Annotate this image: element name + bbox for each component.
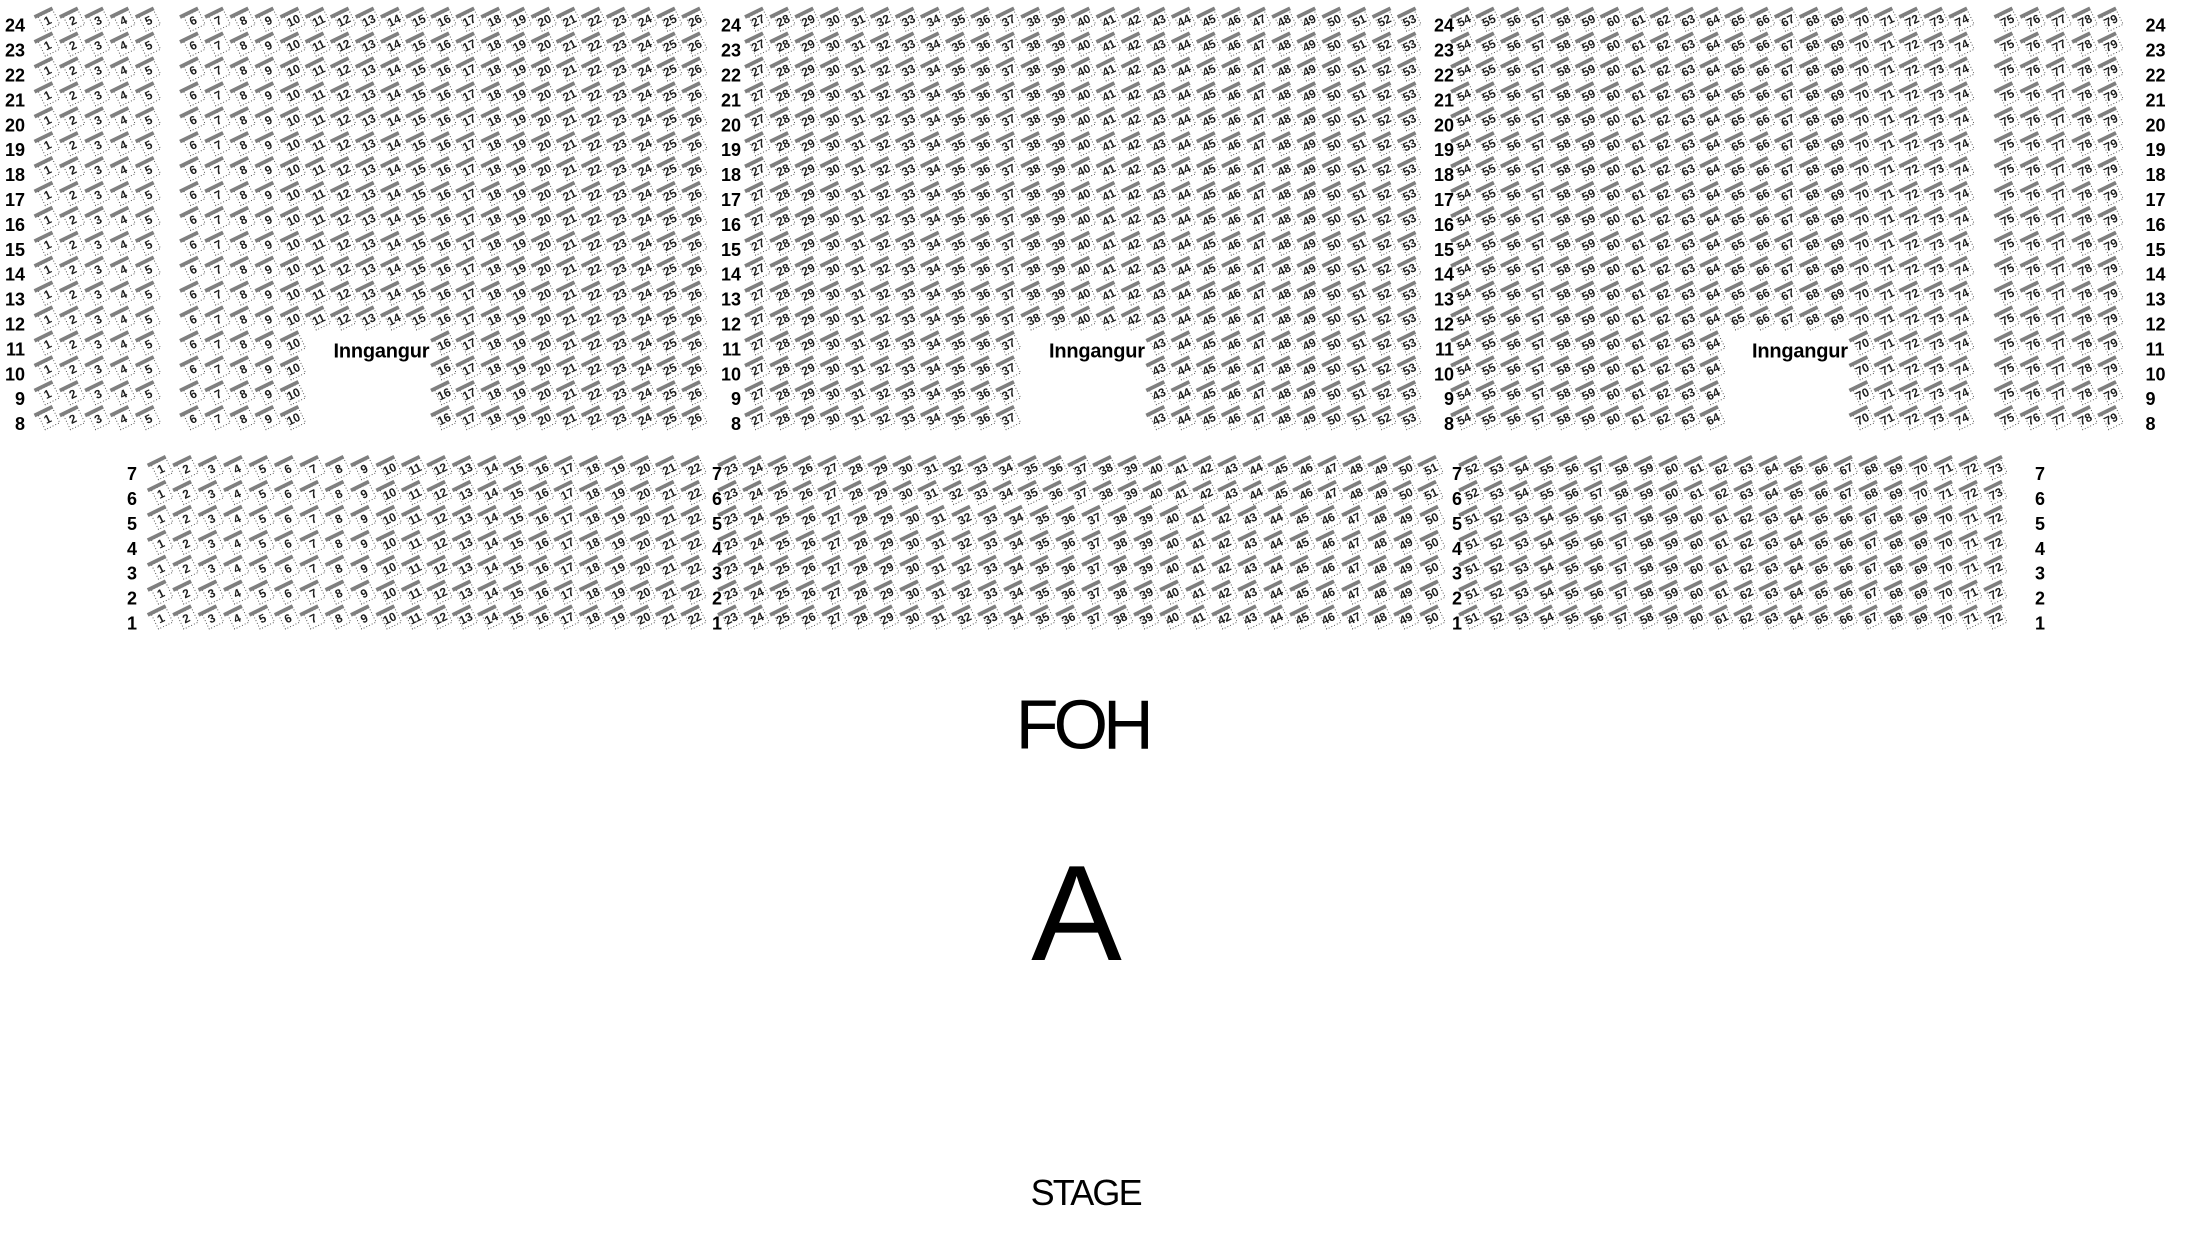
svg-text:8: 8 bbox=[237, 187, 249, 203]
svg-text:8: 8 bbox=[237, 337, 249, 353]
svg-text:22: 22 bbox=[721, 66, 741, 86]
svg-text:9: 9 bbox=[262, 112, 274, 128]
svg-text:16: 16 bbox=[5, 215, 25, 235]
svg-text:15: 15 bbox=[721, 240, 741, 260]
svg-text:8: 8 bbox=[333, 586, 345, 602]
svg-text:22: 22 bbox=[5, 66, 25, 86]
svg-text:14: 14 bbox=[2146, 265, 2166, 285]
svg-text:4: 4 bbox=[231, 511, 243, 527]
svg-text:2: 2 bbox=[67, 411, 79, 427]
svg-text:6: 6 bbox=[1452, 489, 1462, 509]
svg-text:1: 1 bbox=[42, 162, 54, 178]
svg-text:6: 6 bbox=[282, 461, 294, 477]
svg-text:7: 7 bbox=[212, 386, 224, 402]
svg-text:3: 3 bbox=[206, 536, 218, 552]
svg-text:9: 9 bbox=[262, 337, 274, 353]
svg-text:2: 2 bbox=[67, 162, 79, 178]
svg-text:Inngangur: Inngangur bbox=[1049, 341, 1145, 363]
svg-text:FOH: FOH bbox=[1016, 685, 1154, 763]
svg-text:4: 4 bbox=[2035, 539, 2045, 559]
svg-text:9: 9 bbox=[262, 312, 274, 328]
svg-text:10: 10 bbox=[721, 364, 741, 384]
svg-text:4: 4 bbox=[117, 361, 129, 377]
svg-text:20: 20 bbox=[1434, 115, 1454, 135]
svg-text:4: 4 bbox=[231, 586, 243, 602]
svg-text:10: 10 bbox=[5, 364, 25, 384]
svg-text:9: 9 bbox=[358, 611, 370, 627]
svg-text:3: 3 bbox=[92, 162, 104, 178]
svg-text:5: 5 bbox=[143, 88, 155, 104]
svg-text:15: 15 bbox=[1434, 240, 1454, 260]
svg-text:8: 8 bbox=[333, 511, 345, 527]
svg-text:2: 2 bbox=[180, 586, 192, 602]
svg-text:5: 5 bbox=[143, 38, 155, 54]
svg-text:6: 6 bbox=[282, 486, 294, 502]
svg-text:3: 3 bbox=[127, 564, 137, 584]
svg-text:7: 7 bbox=[212, 361, 224, 377]
svg-text:6: 6 bbox=[187, 411, 199, 427]
svg-text:9: 9 bbox=[358, 536, 370, 552]
svg-text:4: 4 bbox=[1452, 539, 1462, 559]
svg-text:6: 6 bbox=[282, 611, 294, 627]
svg-text:6: 6 bbox=[187, 187, 199, 203]
svg-text:21: 21 bbox=[721, 90, 741, 110]
svg-text:7: 7 bbox=[212, 411, 224, 427]
svg-text:5: 5 bbox=[256, 536, 268, 552]
svg-text:4: 4 bbox=[117, 137, 129, 153]
svg-text:6: 6 bbox=[127, 489, 137, 509]
svg-text:7: 7 bbox=[307, 586, 319, 602]
svg-text:22: 22 bbox=[2146, 66, 2166, 86]
svg-text:7: 7 bbox=[212, 312, 224, 328]
svg-text:3: 3 bbox=[206, 486, 218, 502]
svg-text:5: 5 bbox=[256, 511, 268, 527]
svg-text:4: 4 bbox=[117, 13, 129, 29]
svg-text:2: 2 bbox=[1452, 589, 1462, 609]
svg-text:7: 7 bbox=[307, 536, 319, 552]
svg-text:4: 4 bbox=[117, 162, 129, 178]
svg-text:2: 2 bbox=[180, 461, 192, 477]
svg-text:14: 14 bbox=[5, 265, 25, 285]
svg-text:3: 3 bbox=[206, 611, 218, 627]
svg-text:3: 3 bbox=[92, 386, 104, 402]
svg-text:7: 7 bbox=[307, 461, 319, 477]
svg-text:19: 19 bbox=[5, 140, 25, 160]
svg-text:4: 4 bbox=[117, 112, 129, 128]
svg-text:8: 8 bbox=[237, 212, 249, 228]
svg-text:12: 12 bbox=[1434, 315, 1454, 335]
svg-text:5: 5 bbox=[143, 411, 155, 427]
svg-text:7: 7 bbox=[1452, 464, 1462, 484]
svg-text:4: 4 bbox=[117, 386, 129, 402]
svg-text:23: 23 bbox=[721, 41, 741, 61]
svg-text:2: 2 bbox=[67, 63, 79, 79]
svg-text:9: 9 bbox=[262, 162, 274, 178]
svg-text:2: 2 bbox=[67, 38, 79, 54]
svg-text:9: 9 bbox=[262, 237, 274, 253]
svg-text:6: 6 bbox=[187, 63, 199, 79]
svg-text:8: 8 bbox=[237, 361, 249, 377]
svg-text:3: 3 bbox=[92, 63, 104, 79]
svg-text:1: 1 bbox=[2035, 614, 2045, 634]
svg-text:2: 2 bbox=[67, 262, 79, 278]
svg-text:2: 2 bbox=[180, 561, 192, 577]
svg-text:2: 2 bbox=[67, 312, 79, 328]
svg-text:4: 4 bbox=[117, 337, 129, 353]
svg-text:21: 21 bbox=[1434, 90, 1454, 110]
svg-text:9: 9 bbox=[262, 361, 274, 377]
svg-text:9: 9 bbox=[262, 411, 274, 427]
svg-text:8: 8 bbox=[237, 162, 249, 178]
svg-text:7: 7 bbox=[307, 486, 319, 502]
svg-text:9: 9 bbox=[358, 561, 370, 577]
svg-text:6: 6 bbox=[187, 13, 199, 29]
svg-text:21: 21 bbox=[2146, 90, 2166, 110]
svg-text:14: 14 bbox=[721, 265, 741, 285]
svg-text:5: 5 bbox=[143, 162, 155, 178]
svg-text:13: 13 bbox=[1434, 290, 1454, 310]
svg-text:18: 18 bbox=[2146, 165, 2166, 185]
svg-text:9: 9 bbox=[262, 88, 274, 104]
svg-text:3: 3 bbox=[92, 312, 104, 328]
svg-text:9: 9 bbox=[731, 389, 741, 409]
svg-text:2: 2 bbox=[180, 486, 192, 502]
svg-text:9: 9 bbox=[262, 137, 274, 153]
svg-text:8: 8 bbox=[237, 262, 249, 278]
svg-text:23: 23 bbox=[1434, 41, 1454, 61]
svg-text:8: 8 bbox=[237, 411, 249, 427]
svg-text:16: 16 bbox=[2146, 215, 2166, 235]
svg-text:8: 8 bbox=[731, 414, 741, 434]
svg-text:8: 8 bbox=[333, 611, 345, 627]
svg-text:6: 6 bbox=[187, 312, 199, 328]
svg-text:6: 6 bbox=[187, 137, 199, 153]
svg-text:6: 6 bbox=[187, 162, 199, 178]
svg-text:16: 16 bbox=[721, 215, 741, 235]
svg-text:3: 3 bbox=[92, 212, 104, 228]
svg-text:1: 1 bbox=[42, 386, 54, 402]
svg-text:2: 2 bbox=[67, 237, 79, 253]
svg-text:9: 9 bbox=[358, 586, 370, 602]
svg-text:8: 8 bbox=[237, 137, 249, 153]
svg-text:1: 1 bbox=[155, 536, 167, 552]
svg-text:4: 4 bbox=[117, 237, 129, 253]
svg-text:4: 4 bbox=[231, 611, 243, 627]
svg-text:3: 3 bbox=[92, 411, 104, 427]
svg-text:1: 1 bbox=[712, 614, 722, 634]
svg-text:3: 3 bbox=[92, 187, 104, 203]
svg-text:8: 8 bbox=[237, 13, 249, 29]
svg-text:5: 5 bbox=[143, 13, 155, 29]
svg-text:5: 5 bbox=[143, 386, 155, 402]
svg-text:1: 1 bbox=[42, 312, 54, 328]
svg-text:1: 1 bbox=[42, 262, 54, 278]
svg-text:7: 7 bbox=[212, 337, 224, 353]
svg-text:3: 3 bbox=[92, 287, 104, 303]
svg-text:19: 19 bbox=[721, 140, 741, 160]
svg-text:9: 9 bbox=[262, 187, 274, 203]
svg-text:17: 17 bbox=[5, 190, 25, 210]
svg-text:8: 8 bbox=[333, 486, 345, 502]
svg-text:9: 9 bbox=[262, 287, 274, 303]
svg-text:1: 1 bbox=[155, 561, 167, 577]
svg-text:1: 1 bbox=[1452, 614, 1462, 634]
svg-text:6: 6 bbox=[187, 88, 199, 104]
svg-text:9: 9 bbox=[358, 486, 370, 502]
svg-text:5: 5 bbox=[1452, 514, 1462, 534]
svg-text:6: 6 bbox=[187, 361, 199, 377]
svg-text:20: 20 bbox=[2146, 115, 2166, 135]
svg-text:4: 4 bbox=[117, 411, 129, 427]
svg-text:1: 1 bbox=[155, 586, 167, 602]
svg-text:5: 5 bbox=[143, 137, 155, 153]
svg-text:5: 5 bbox=[143, 337, 155, 353]
svg-text:1: 1 bbox=[42, 237, 54, 253]
svg-text:3: 3 bbox=[92, 137, 104, 153]
svg-text:6: 6 bbox=[187, 386, 199, 402]
svg-text:19: 19 bbox=[1434, 140, 1454, 160]
svg-text:13: 13 bbox=[721, 290, 741, 310]
svg-text:6: 6 bbox=[187, 262, 199, 278]
svg-text:6: 6 bbox=[712, 489, 722, 509]
svg-text:1: 1 bbox=[155, 486, 167, 502]
svg-text:10: 10 bbox=[1434, 364, 1454, 384]
svg-text:11: 11 bbox=[6, 339, 25, 359]
svg-text:2: 2 bbox=[127, 589, 137, 609]
svg-text:5: 5 bbox=[143, 312, 155, 328]
svg-text:1: 1 bbox=[127, 614, 137, 634]
svg-text:6: 6 bbox=[187, 287, 199, 303]
svg-text:23: 23 bbox=[5, 41, 25, 61]
svg-text:3: 3 bbox=[1452, 564, 1462, 584]
svg-text:7: 7 bbox=[212, 287, 224, 303]
svg-text:3: 3 bbox=[92, 88, 104, 104]
svg-text:4: 4 bbox=[231, 536, 243, 552]
svg-text:2: 2 bbox=[712, 589, 722, 609]
svg-text:8: 8 bbox=[237, 88, 249, 104]
svg-text:1: 1 bbox=[42, 38, 54, 54]
svg-text:Inngangur: Inngangur bbox=[1752, 341, 1848, 363]
svg-text:4: 4 bbox=[117, 187, 129, 203]
svg-text:7: 7 bbox=[307, 511, 319, 527]
svg-text:20: 20 bbox=[721, 115, 741, 135]
svg-text:6: 6 bbox=[187, 237, 199, 253]
svg-text:7: 7 bbox=[212, 63, 224, 79]
svg-text:4: 4 bbox=[231, 486, 243, 502]
svg-text:1: 1 bbox=[42, 137, 54, 153]
svg-text:2: 2 bbox=[67, 337, 79, 353]
svg-text:7: 7 bbox=[127, 464, 137, 484]
svg-text:A: A bbox=[1031, 837, 1122, 989]
svg-text:2: 2 bbox=[67, 212, 79, 228]
svg-text:2: 2 bbox=[67, 386, 79, 402]
svg-text:9: 9 bbox=[262, 13, 274, 29]
svg-text:7: 7 bbox=[212, 237, 224, 253]
svg-text:12: 12 bbox=[2146, 315, 2166, 335]
svg-text:5: 5 bbox=[256, 461, 268, 477]
svg-text:6: 6 bbox=[282, 511, 294, 527]
svg-text:5: 5 bbox=[143, 112, 155, 128]
svg-text:7: 7 bbox=[212, 137, 224, 153]
svg-text:7: 7 bbox=[2035, 464, 2045, 484]
svg-text:3: 3 bbox=[92, 361, 104, 377]
svg-text:2: 2 bbox=[180, 511, 192, 527]
svg-text:3: 3 bbox=[206, 586, 218, 602]
svg-text:17: 17 bbox=[2146, 190, 2166, 210]
svg-text:9: 9 bbox=[15, 389, 25, 409]
svg-text:4: 4 bbox=[117, 63, 129, 79]
svg-text:7: 7 bbox=[212, 112, 224, 128]
svg-text:3: 3 bbox=[2035, 564, 2045, 584]
svg-text:5: 5 bbox=[256, 486, 268, 502]
svg-text:9: 9 bbox=[2146, 389, 2156, 409]
svg-text:5: 5 bbox=[256, 611, 268, 627]
svg-text:3: 3 bbox=[206, 461, 218, 477]
svg-text:6: 6 bbox=[2035, 489, 2045, 509]
svg-text:3: 3 bbox=[92, 237, 104, 253]
svg-text:8: 8 bbox=[333, 461, 345, 477]
svg-text:6: 6 bbox=[187, 38, 199, 54]
svg-text:18: 18 bbox=[721, 165, 741, 185]
svg-text:4: 4 bbox=[231, 461, 243, 477]
svg-text:1: 1 bbox=[42, 187, 54, 203]
svg-text:19: 19 bbox=[2146, 140, 2166, 160]
svg-text:9: 9 bbox=[1444, 389, 1454, 409]
svg-text:4: 4 bbox=[117, 287, 129, 303]
svg-text:8: 8 bbox=[237, 312, 249, 328]
svg-text:7: 7 bbox=[212, 187, 224, 203]
svg-text:12: 12 bbox=[721, 315, 741, 335]
svg-text:8: 8 bbox=[2146, 414, 2156, 434]
svg-text:4: 4 bbox=[712, 539, 722, 559]
svg-text:1: 1 bbox=[42, 337, 54, 353]
svg-text:2: 2 bbox=[67, 287, 79, 303]
svg-text:1: 1 bbox=[42, 361, 54, 377]
svg-text:7: 7 bbox=[212, 212, 224, 228]
svg-text:1: 1 bbox=[155, 611, 167, 627]
svg-text:15: 15 bbox=[2146, 240, 2166, 260]
svg-text:8: 8 bbox=[237, 287, 249, 303]
svg-text:8: 8 bbox=[15, 414, 25, 434]
svg-text:13: 13 bbox=[2146, 290, 2166, 310]
svg-text:5: 5 bbox=[143, 187, 155, 203]
svg-text:7: 7 bbox=[212, 162, 224, 178]
svg-text:8: 8 bbox=[237, 386, 249, 402]
svg-text:24: 24 bbox=[721, 16, 741, 36]
svg-text:6: 6 bbox=[187, 337, 199, 353]
svg-text:7: 7 bbox=[212, 38, 224, 54]
svg-text:6: 6 bbox=[282, 561, 294, 577]
svg-text:2: 2 bbox=[67, 13, 79, 29]
svg-text:7: 7 bbox=[307, 561, 319, 577]
svg-text:8: 8 bbox=[333, 561, 345, 577]
svg-text:2: 2 bbox=[67, 137, 79, 153]
svg-text:4: 4 bbox=[231, 561, 243, 577]
svg-text:24: 24 bbox=[2146, 16, 2166, 36]
svg-text:8: 8 bbox=[237, 237, 249, 253]
svg-text:4: 4 bbox=[117, 312, 129, 328]
svg-text:9: 9 bbox=[262, 38, 274, 54]
svg-text:11: 11 bbox=[1435, 339, 1454, 359]
svg-text:1: 1 bbox=[42, 112, 54, 128]
svg-text:3: 3 bbox=[712, 564, 722, 584]
svg-text:6: 6 bbox=[187, 112, 199, 128]
svg-text:18: 18 bbox=[5, 165, 25, 185]
svg-text:4: 4 bbox=[117, 88, 129, 104]
svg-text:5: 5 bbox=[143, 361, 155, 377]
svg-text:2: 2 bbox=[2035, 589, 2045, 609]
svg-text:17: 17 bbox=[1434, 190, 1454, 210]
svg-text:13: 13 bbox=[5, 290, 25, 310]
svg-text:9: 9 bbox=[358, 461, 370, 477]
svg-text:3: 3 bbox=[92, 38, 104, 54]
svg-text:8: 8 bbox=[1444, 414, 1454, 434]
svg-text:7: 7 bbox=[712, 464, 722, 484]
svg-text:5: 5 bbox=[143, 287, 155, 303]
svg-text:5: 5 bbox=[256, 586, 268, 602]
svg-text:1: 1 bbox=[155, 511, 167, 527]
svg-text:7: 7 bbox=[307, 611, 319, 627]
svg-text:6: 6 bbox=[187, 212, 199, 228]
svg-text:18: 18 bbox=[1434, 165, 1454, 185]
svg-text:12: 12 bbox=[5, 315, 25, 335]
svg-text:5: 5 bbox=[143, 212, 155, 228]
svg-text:9: 9 bbox=[262, 262, 274, 278]
svg-text:4: 4 bbox=[127, 539, 137, 559]
svg-text:5: 5 bbox=[2035, 514, 2045, 534]
svg-text:2: 2 bbox=[67, 112, 79, 128]
svg-text:22: 22 bbox=[1434, 66, 1454, 86]
svg-text:17: 17 bbox=[721, 190, 741, 210]
svg-text:9: 9 bbox=[262, 212, 274, 228]
svg-text:2: 2 bbox=[180, 611, 192, 627]
svg-text:6: 6 bbox=[282, 586, 294, 602]
svg-text:Inngangur: Inngangur bbox=[334, 341, 430, 363]
svg-text:1: 1 bbox=[42, 63, 54, 79]
svg-text:11: 11 bbox=[722, 339, 741, 359]
svg-text:24: 24 bbox=[1434, 16, 1454, 36]
svg-text:8: 8 bbox=[237, 112, 249, 128]
svg-text:6: 6 bbox=[282, 536, 294, 552]
svg-text:2: 2 bbox=[67, 187, 79, 203]
svg-text:4: 4 bbox=[117, 212, 129, 228]
svg-text:1: 1 bbox=[42, 13, 54, 29]
svg-text:21: 21 bbox=[5, 90, 25, 110]
svg-text:7: 7 bbox=[212, 88, 224, 104]
svg-text:5: 5 bbox=[143, 237, 155, 253]
svg-text:3: 3 bbox=[92, 13, 104, 29]
svg-text:11: 11 bbox=[2146, 339, 2165, 359]
svg-text:1: 1 bbox=[42, 411, 54, 427]
svg-text:15: 15 bbox=[5, 240, 25, 260]
svg-text:7: 7 bbox=[212, 262, 224, 278]
svg-text:1: 1 bbox=[42, 88, 54, 104]
svg-text:9: 9 bbox=[262, 386, 274, 402]
svg-text:3: 3 bbox=[92, 337, 104, 353]
svg-text:20: 20 bbox=[5, 115, 25, 135]
svg-text:14: 14 bbox=[1434, 265, 1454, 285]
svg-text:9: 9 bbox=[262, 63, 274, 79]
svg-text:2: 2 bbox=[180, 536, 192, 552]
svg-text:3: 3 bbox=[92, 262, 104, 278]
svg-text:1: 1 bbox=[42, 287, 54, 303]
svg-text:STAGE: STAGE bbox=[1031, 1172, 1143, 1213]
svg-text:5: 5 bbox=[256, 561, 268, 577]
svg-text:5: 5 bbox=[712, 514, 722, 534]
svg-text:3: 3 bbox=[206, 511, 218, 527]
svg-text:16: 16 bbox=[1434, 215, 1454, 235]
svg-text:3: 3 bbox=[92, 112, 104, 128]
